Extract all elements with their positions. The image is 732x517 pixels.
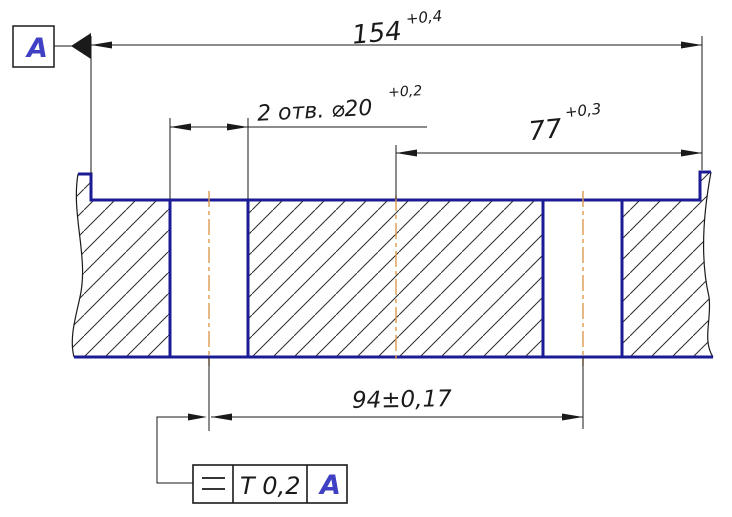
fcf-leader-line: [157, 417, 193, 483]
fcf-tolerance-value: T 0,2: [240, 472, 300, 500]
dim-text-77: 77 +0,3: [526, 100, 604, 148]
overall-value: 154: [351, 16, 403, 50]
arrow-overall-right: [681, 42, 702, 49]
arrow-94-left: [211, 414, 232, 421]
drawing-canvas: A 154 +0,4 2 отв. ⌀20 +0,2 77 +0,3 94±0,…: [0, 0, 732, 517]
dim-text-94: 94±0,17: [352, 386, 453, 414]
fcf-datum-ref: A: [318, 470, 341, 501]
arrow-overall-left: [91, 42, 112, 49]
right-half-tolerance: +0,3: [564, 100, 602, 122]
arrow-77-right: [681, 150, 702, 157]
arrow-dia-right: [227, 124, 248, 131]
overall-tolerance: +0,4: [405, 7, 443, 28]
holes-tolerance: +0,2: [388, 83, 423, 101]
dim-text-overall: 154 +0,4: [350, 7, 444, 51]
arrow-fcf-leader: [188, 414, 207, 421]
arrow-dia-left: [170, 124, 191, 131]
holes-note: 2 отв. ⌀20: [256, 96, 373, 127]
arrow-94-right: [562, 414, 583, 421]
datum-triangle: [71, 33, 91, 59]
hole-centers-value: 94±0,17: [352, 386, 453, 414]
arrow-77-left: [396, 150, 417, 157]
dim-text-holes: 2 отв. ⌀20 +0,2: [256, 83, 424, 127]
outline-top-edge: [78, 172, 711, 200]
technical-drawing: A 154 +0,4 2 отв. ⌀20 +0,2 77 +0,3 94±0,…: [0, 0, 732, 517]
datum-label: A: [25, 33, 48, 64]
right-half-value: 77: [527, 114, 563, 147]
feature-control-frame: T 0,2 A: [193, 465, 347, 503]
